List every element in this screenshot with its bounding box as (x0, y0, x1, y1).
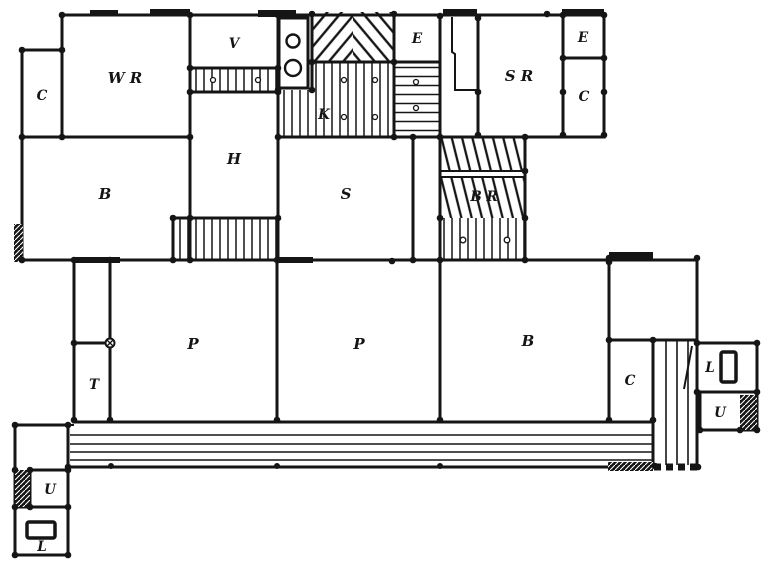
roof-chevron-right (353, 12, 394, 62)
br-hatch-upper (440, 137, 525, 171)
corridor-partition (452, 17, 478, 90)
room-label-u-right: U (714, 405, 727, 421)
room-label-t: T (89, 377, 100, 393)
crossed-circle-marker (106, 339, 115, 348)
room-label-p-left: P (186, 335, 199, 353)
boarded-strip-right-of-e (394, 62, 440, 137)
room-label-u-left: U (44, 482, 57, 498)
veranda-board-lines (70, 435, 652, 460)
room-label-h: H (226, 150, 242, 168)
room-label-s: S (341, 185, 352, 203)
floor-plan-page: C W R V K E S R E C B H S B R P P B T C … (0, 0, 767, 565)
room-label-v: V (229, 36, 241, 52)
room-label-k: K (317, 107, 331, 123)
corridor-board-lines (666, 341, 688, 465)
toilet-fixture-right-icon (721, 352, 736, 382)
toilet-fixture-left-icon (27, 522, 55, 538)
hatched-wall-marks (14, 224, 757, 507)
floor-plan-figure: C W R V K E S R E C B H S B R P P B T C … (0, 0, 767, 565)
room-label-c-lower-right: C (625, 373, 636, 389)
boarded-strip-below-v (190, 68, 278, 92)
room-label-e-upper-right: E (577, 30, 589, 46)
room-label-l-right: L (704, 360, 715, 376)
kitchen-floor-boards (312, 62, 394, 137)
room-label-b-upper-left: B (98, 185, 112, 203)
room-label-b-lower-right: B (521, 332, 535, 350)
room-label-l-left: L (36, 539, 47, 555)
room-label-e-upper-middle: E (411, 31, 423, 47)
br-divider (440, 171, 525, 177)
stove-icon (279, 18, 308, 88)
room-label-c-upper-left: C (37, 88, 48, 104)
stair-hatching-below-br (440, 218, 525, 260)
room-label-br: B R (469, 189, 497, 205)
room-label-wr: W R (108, 69, 143, 87)
room-label-p-center: P (352, 335, 365, 353)
room-label-c-upper-right: C (579, 89, 590, 105)
kitchen-floor-boards-left (278, 90, 312, 137)
room-label-sr: S R (505, 67, 534, 85)
roof-chevron-left (312, 12, 353, 62)
